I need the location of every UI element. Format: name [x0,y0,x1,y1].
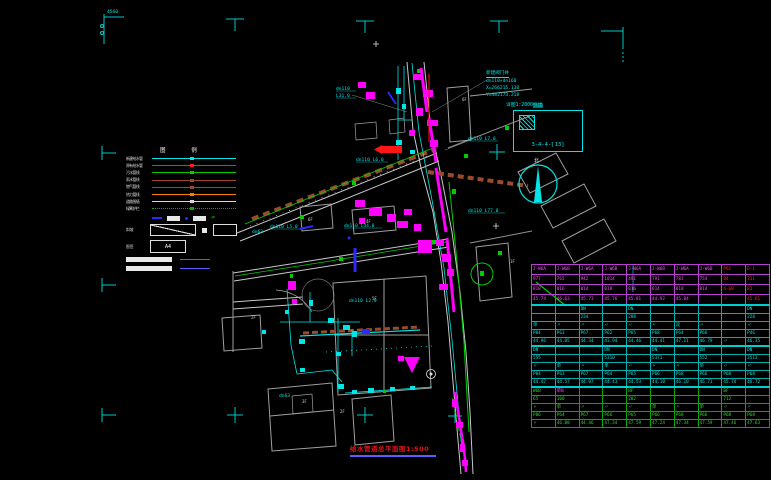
legend-row: 原有给水管 [126,162,236,169]
blue-dot-symbol [185,217,188,220]
table-cell [532,305,556,314]
table-cell: 46.71 [698,379,722,388]
table-cell: 47.63 [746,420,770,428]
table-cell: 单 [555,363,579,371]
legend-row: 热力管线 [126,191,236,198]
table-cell: 〃 [603,322,627,330]
table-cell: DN [532,346,556,355]
table-cell: P66 [650,371,674,379]
table-row: J-W6AJ-W6BJ-W6AJ-W6BJ-W6AJ-W6BJ-W6AJ-W6B… [532,265,770,275]
table-row: P86P64P67P66P65P66P68P66P68P68 [532,412,770,420]
green-plant-symbol: ≠ [211,216,215,221]
table-cell: P84 [532,330,556,338]
table-cell [674,387,698,396]
table-section: DNDNDN234288228单〃〃〃〃〃双〃〃P84P63P67P62P65P… [532,305,770,346]
table-cell: 44.96 [532,338,556,347]
table-cell: J-W6B [603,265,627,275]
table-cell [650,396,674,404]
table-cell [674,396,698,404]
valve-note-x: X=266215.138 [486,85,519,92]
detail-note-highlight: 引出 [533,103,543,108]
table-cell: 46.10 [674,379,698,388]
frame-label: 图签 [126,244,142,250]
table-cell: 765 [555,275,579,285]
table-row: 44.9644.8544.3443.9444.4644.4147.1146.79… [532,338,770,347]
table-cell: DN [627,305,651,314]
table-cell [674,305,698,314]
table-cell: 791 [650,275,674,285]
legend-line [152,158,236,159]
table-cell [746,396,770,404]
legend-line [152,201,236,202]
table-cell: 44.57 [555,379,579,388]
table-cell: 47.59 [698,420,722,428]
table-cell: P67 [579,371,603,379]
slope-symbol [150,224,196,236]
table-cell [722,305,746,314]
table-cell: DN [603,346,627,355]
legend-line [152,172,236,173]
square-symbol [202,228,207,233]
table-cell [722,330,746,338]
table-cell [650,305,674,314]
table-row: P84P63P67P64P65P66P68P66P68P68 [532,371,770,379]
slope-label: 斜坡 [126,227,144,233]
table-cell: 单 [603,363,627,371]
white-bar-symbol [126,257,172,262]
table-cell: 〃 [722,363,746,371]
legend-line [152,187,236,188]
table-cell: 818 [532,285,556,295]
table-cell: 45.84 [674,295,698,306]
legend-label: 燃气管线 [126,184,152,190]
table-cell: DN [746,346,770,355]
legend-rows: 新建给水管 原有给水管 污水管线 雨水管线 燃气管线 [126,155,236,213]
red-arrow-symbol [374,145,382,154]
green-markers [290,69,509,393]
title-underline [350,455,436,457]
floor-labels: 6F 4F 5F 2F 3F 1F 6F 2F [251,97,515,414]
table-cell: J-W6B [555,265,579,275]
table-cell: P64 [674,330,698,338]
table-row: W6B单BBFBF [532,387,770,396]
table-cell: P63 [555,371,579,379]
table-cell: P63 [555,330,579,338]
floor-label: 4F [366,219,371,224]
table-cell: P46 [746,330,770,338]
table-cell [627,346,651,355]
table-cell: 〃 [650,322,674,330]
table-cell: P68 [650,330,674,338]
table-cell: 单 [650,404,674,412]
table-cell [579,396,603,404]
table-cell: 555 [532,355,556,363]
table-cell [627,355,651,363]
table-cell: 〃 [627,363,651,371]
table-cell: P68 [722,412,746,420]
table-cell: 814 [698,285,722,295]
table-cell: 65 [532,396,556,404]
table-cell: 47.59 [627,420,651,428]
table-cell: 〃 [627,322,651,330]
detail-reference-box: 3-4-4-[13] [513,110,583,152]
drawing-title: 给水管道总平面图1:500 [350,443,436,457]
table-row: 45.7446.6345.7345.7645.8144.9245.84〃45.6… [532,295,770,306]
table-cell: 234 [579,314,603,322]
table-cell [555,355,579,363]
table-section: W6B单BBFBF65100202712〃单〃〃〃单〃单〃〃P86P64P67P… [532,387,770,428]
pipeline-nodes-magenta [288,74,468,466]
legend-line [152,165,236,166]
legend-slope-row: 斜坡 [126,224,237,236]
table-cell [650,387,674,396]
legend-row: 新建给水管 [126,155,236,162]
table-cell: BF [722,387,746,396]
table-cell [603,314,627,322]
valve-note-size: dn110×dn160 [486,78,519,85]
table-cell [698,305,722,314]
table-cell: 45.76 [603,295,627,306]
table-cell: 46.79 [698,338,722,347]
table-cell: 816 [555,285,579,295]
table-cell: 〃 [555,322,579,330]
table-cell: 814 [579,285,603,295]
table-cell: J-W6B [650,265,674,275]
table-cell: 〃 [722,295,746,306]
table-cell: 44.41 [650,338,674,347]
table-cell: 〃 [650,363,674,371]
table-cell: 〃 [532,363,556,371]
table-cell [579,387,603,396]
table-cell: 84 [722,275,746,285]
valve-note: 新建阀门井 dn110×dn160 X=266215.138 Y=482173.… [486,70,519,99]
table-row: DNDNDN [532,305,770,314]
valve-note-y: Y=482173.218 [486,92,519,99]
legend-bar-row [126,256,210,263]
table-cell [532,314,556,322]
table-cell: 〃 [746,363,770,371]
table-cell: P68 [722,371,746,379]
table-cell: 〃 [722,404,746,412]
table-cell: W6B [532,387,556,396]
pipe-label: dn63 [279,393,290,399]
hydrant-triangle-symbol [404,357,420,373]
table-cell: 45.74 [722,379,746,388]
table-cell: 288 [627,314,651,322]
table-cell [722,314,746,322]
legend: 图 例 新建给水管 原有给水管 污水管线 雨水管线 [126,144,238,272]
legend-label: 雨水管线 [126,177,152,183]
table-cell: 816 [627,285,651,295]
main-pipeline-magenta [421,68,466,472]
table-row: 65100202712 [532,396,770,404]
table-cell: 46.63 [555,295,579,306]
table-row: 234288228 [532,314,770,322]
blue-line-symbol [180,268,210,269]
table-cell: 44.53 [627,379,651,388]
table-cell: J-W6A [674,265,698,275]
legend-label: 绿篱护栏 [126,206,152,212]
floor-label: 6F [308,217,313,222]
table-cell [674,355,698,363]
table-cell: 44.34 [579,338,603,347]
legend-row: 燃气管线 [126,184,236,191]
table-cell: 44.46 [627,338,651,347]
well-data-table: J-W6AJ-W6BJ-W6AJ-W6BJ-W6AJ-W6BJ-W6AJ-W6B… [531,264,770,417]
pipe-labels: dn110 L31.0 dn110 L6.0 dn110 L5.0 dn110 … [252,86,505,399]
detail-note-text: 详图1:2000 [506,103,533,108]
table-cell: P66 [650,412,674,420]
table-cell: 46.35 [746,338,770,347]
table-cell: 4-6B [722,285,746,295]
legend-row: 污水管线 [126,169,236,176]
table-section: DNDNDNDNDN555531053715522513〃单〃单〃〃〃单〃〃P8… [532,346,770,387]
table-cell: D-1 [746,265,770,275]
north-label: 北 [534,157,539,164]
legend-row: 雨水管线 [126,177,236,184]
table-cell: J-W6A [627,265,651,275]
cad-canvas: 4560 [0,0,771,480]
floor-label: 2F [340,409,345,414]
legend-label: 道路围墙 [126,199,152,205]
table-cell: 〃 [579,404,603,412]
legend-label: 污水管线 [126,170,152,176]
table-cell [603,305,627,314]
table-cell: 228 [746,314,770,322]
table-cell [650,314,674,322]
table-cell: P65 [627,371,651,379]
table-cell: 46.72 [746,379,770,388]
table-row: DNDNDNDNDN [532,346,770,355]
table-row: 〃单〃单〃〃〃单〃〃 [532,363,770,371]
corner-mark-label: 4560 [107,9,118,15]
table-cell: BF [627,387,651,396]
table-cell: 47.24 [650,420,674,428]
table-cell [674,346,698,355]
table-cell: 977 [532,275,556,285]
table-cell: P66 [698,371,722,379]
table-cell: 〃 [579,363,603,371]
table-cell [698,396,722,404]
floor-label: 1F [510,259,515,264]
table-cell: P92 [722,265,746,275]
table-cell: 100 [555,396,579,404]
valve-note-title: 新建阀门井 [486,70,509,78]
table-cell: 44.07 [579,379,603,388]
empty-box-symbol [213,224,237,236]
table-cell [722,355,746,363]
table-cell: 45.74 [532,295,556,306]
table-cell [603,396,627,404]
table-cell: P68 [674,412,698,420]
table-cell: 818 [603,285,627,295]
hatch-square-icon [519,115,535,130]
legend-label: 新建给水管 [126,156,152,162]
detail-code: 3-4-4-[13] [514,142,582,148]
legend-label: 热力管线 [126,192,152,198]
blue-dash-symbol [152,217,162,219]
well-data-grid: J-W6AJ-W6BJ-W6AJ-W6BJ-W6AJ-W6BJ-W6AJ-W6B… [531,264,770,428]
table-cell: 202 [627,396,651,404]
table-cell: 311 [746,275,770,285]
table-cell: P65 [627,412,651,420]
table-cell: 单 [698,363,722,371]
legend-row: 道路围墙 [126,198,236,205]
table-cell: 1014 [603,275,627,285]
table-cell: P68 [674,371,698,379]
table-cell: 〃 [532,404,556,412]
table-cell [555,346,579,355]
white-box-symbol [193,216,206,221]
floor-label: 6F [462,97,467,102]
table-row: 单〃〃〃〃〃双〃〃 [532,322,770,330]
table-cell [579,346,603,355]
table-cell: P64 [555,412,579,420]
table-cell: P86 [532,412,556,420]
floor-label: 2F [251,315,256,320]
magenta-line-symbol [180,259,210,260]
table-cell: DN [579,305,603,314]
table-cell [674,314,698,322]
table-cell: J-W6A [579,265,603,275]
table-cell: 5371 [650,355,674,363]
table-cell: 491 [627,275,651,285]
table-cell: 单B [555,387,579,396]
table-cell: P62 [603,330,627,338]
table-cell: 单 [555,404,579,412]
table-cell: 818 [674,285,698,295]
table-cell: DN [650,346,674,355]
table-cell: 81 [746,285,770,295]
legend-line [152,194,236,195]
table-cell: 44.46 [579,420,603,428]
pipe-label: dn63 [252,229,263,235]
green-lines [235,148,566,468]
table-cell [698,387,722,396]
legend-line [152,180,236,181]
table-cell: 单 [532,322,556,330]
table-row: 8188168148188168148188144-6B81 [532,285,770,295]
legend-symbol-row: ≠ [126,214,236,222]
table-cell: P66 [603,412,627,420]
table-cell: 47.46 [722,420,746,428]
table-row: 〃46.8844.4647.3447.5947.2447.3447.5947.4… [532,420,770,428]
table-cell: 47.11 [674,338,698,347]
table-cell: 2513 [746,355,770,363]
table-cell: P68 [746,412,770,420]
table-cell: 〃 [698,322,722,330]
table-cell: DN [746,305,770,314]
table-row: P84P63P67P62P65P68P64P66P46 [532,330,770,338]
table-cell: J-W6A [532,265,556,275]
legend-row: 绿篱护栏 [126,205,236,212]
table-cell: 44.10 [650,379,674,388]
table-cell: 45.73 [579,295,603,306]
table-row: 977765942101449179178375484311 [532,275,770,285]
detail-note: 详图1:2000引出 [506,101,543,108]
table-cell: P65 [627,330,651,338]
table-cell: 712 [722,396,746,404]
table-cell: 〃 [603,404,627,412]
table-cell: 783 [674,275,698,285]
utility-strip-lines [252,149,528,333]
table-cell: 〃 [722,338,746,347]
table-cell: 〃 [579,322,603,330]
table-row: 44.4744.5744.0744.4344.5344.1046.1046.71… [532,379,770,388]
table-cell: P66 [698,412,722,420]
table-cell: 44.92 [650,295,674,306]
table-cell: P68 [746,371,770,379]
table-cell: J-W6B [698,265,722,275]
table-cell: P67 [579,330,603,338]
table-cell: 〃 [674,404,698,412]
table-cell: P66 [698,330,722,338]
table-cell: 45.81 [627,295,651,306]
table-cell: 双 [674,322,698,330]
legend-bar-row [126,265,210,272]
table-cell: 44.85 [555,338,579,347]
table-cell: 47.34 [674,420,698,428]
table-section: J-W6AJ-W6BJ-W6AJ-W6BJ-W6AJ-W6BJ-W6AJ-W6B… [532,265,770,306]
white-box-symbol [167,216,180,221]
table-cell: 552 [698,355,722,363]
drawing-title-text: 给水管道总平面图1:500 [350,443,436,453]
table-cell: 46.88 [555,420,579,428]
floor-label: 5F [372,296,377,301]
table-cell: 单 [698,404,722,412]
table-cell [722,322,746,330]
table-row: 555531053715522513 [532,355,770,363]
table-cell: 47.34 [603,420,627,428]
table-cell [698,295,722,306]
road-lines [233,62,532,474]
table-cell: P67 [579,412,603,420]
table-cell: P64 [603,371,627,379]
table-cell [746,387,770,396]
frame-size-box: A4 [150,240,186,253]
table-cell [698,314,722,322]
table-cell: 754 [698,275,722,285]
table-cell: 5310 [603,355,627,363]
table-cell [722,346,746,355]
table-cell: 〃 [746,322,770,330]
legend-label: 原有给水管 [126,163,152,169]
table-cell: 44.43 [603,379,627,388]
white-bar-symbol [126,266,172,271]
table-cell: 〃 [532,420,556,428]
floor-label: 3F [302,399,307,404]
legend-frame-row: 图签 A4 [126,240,186,253]
table-cell: 814 [650,285,674,295]
north-arrow: 北 [519,157,557,203]
table-cell: 45.61 [746,295,770,306]
table-cell [603,387,627,396]
table-cell: 〃 [746,404,770,412]
table-cell: 44.47 [532,379,556,388]
table-cell [579,355,603,363]
table-cell [555,305,579,314]
table-cell [555,314,579,322]
table-cell: 〃 [627,404,651,412]
table-row: 〃单〃〃〃单〃单〃〃 [532,404,770,412]
legend-line [152,208,236,210]
legend-header: 图 例 [160,146,209,154]
table-cell: 942 [579,275,603,285]
table-cell: DN [698,346,722,355]
table-cell: 43.94 [603,338,627,347]
table-cell: 〃 [674,363,698,371]
table-cell: P84 [532,371,556,379]
